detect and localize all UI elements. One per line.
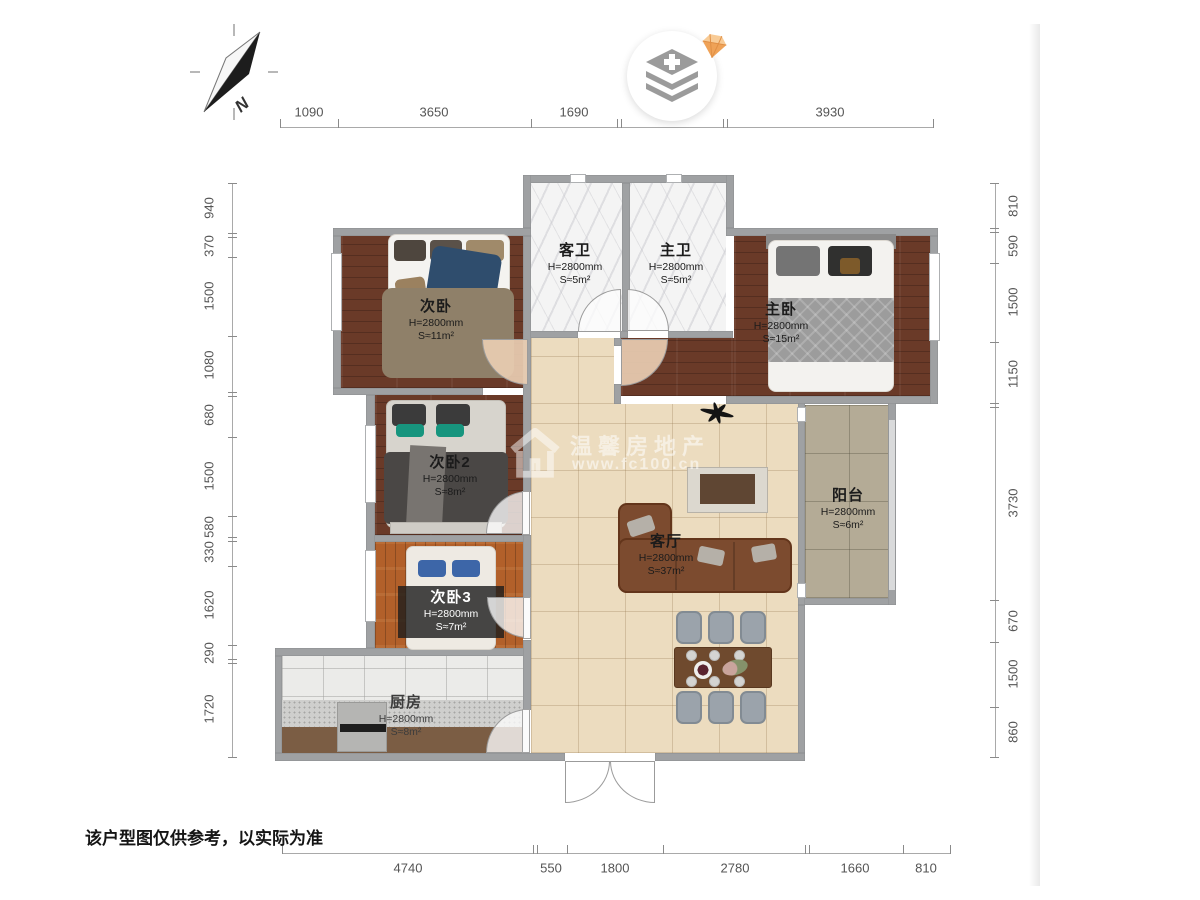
tick-mark (727, 119, 728, 128)
dim-label: 1500 (202, 282, 217, 311)
wall (275, 753, 565, 761)
tick-mark (990, 342, 999, 343)
wall (800, 598, 895, 605)
room-label-guest-bath: 客卫 H=2800mm S≈5m² (548, 241, 603, 288)
floor-hall-corridor (531, 338, 614, 404)
dim-label: 3650 (420, 105, 449, 120)
tick-mark (933, 119, 934, 128)
layers-plus-icon (644, 48, 700, 104)
tick-mark (805, 845, 806, 854)
tick-mark (228, 659, 237, 660)
room-height: H=2800mm (423, 473, 478, 487)
tick-mark (723, 119, 724, 128)
pillow (452, 560, 480, 577)
plate (686, 676, 697, 687)
tick-mark (990, 407, 999, 408)
window (929, 253, 940, 341)
room-area: S≈5m² (548, 274, 603, 288)
room-label-master-bedroom: 主卧 H=2800mm S≈15m² (754, 300, 809, 347)
tick-mark (228, 233, 237, 234)
pillow (418, 560, 446, 577)
wall (523, 175, 531, 228)
tick-mark (621, 119, 622, 128)
dim-label: 1500 (1006, 288, 1021, 317)
dim-label: 1150 (1006, 360, 1021, 388)
dim-label: 3930 (816, 105, 845, 120)
tick-mark (228, 757, 237, 758)
house-icon (506, 424, 564, 480)
tick-mark (617, 119, 618, 128)
wall (366, 535, 530, 542)
wall (275, 656, 282, 753)
tick-mark (228, 566, 237, 567)
wall (798, 605, 805, 753)
tick-mark (228, 541, 237, 542)
room-height: H=2800mm (821, 506, 876, 520)
dining-chair (708, 611, 734, 644)
tick-mark (990, 642, 999, 643)
room-height: H=2800mm (379, 713, 434, 727)
wall (655, 753, 805, 761)
dim-label: 550 (540, 861, 562, 876)
room-height: H=2800mm (548, 261, 603, 275)
pillow (840, 258, 860, 274)
plate (734, 676, 745, 687)
tick-mark (228, 257, 237, 258)
dim-label: 940 (202, 197, 217, 219)
fruit-bowl (694, 661, 712, 679)
room-name: 客厅 (639, 532, 694, 552)
dining-chair (708, 691, 734, 724)
plate (709, 676, 720, 687)
sofa-seam (733, 542, 735, 590)
entrance-door-left (565, 761, 610, 803)
window (365, 425, 376, 503)
wall (726, 396, 938, 404)
room-name: 主卫 (649, 241, 704, 261)
room-label-bedroom1: 次卧 H=2800mm S≈11m² (409, 297, 464, 344)
room-area: S≈8m² (379, 726, 434, 740)
pillow (392, 404, 426, 426)
room-height: H=2800mm (409, 317, 464, 331)
dim-label: 810 (1006, 195, 1021, 217)
room-area: S≈6m² (821, 519, 876, 533)
watermark-url: www.fc100.cn (572, 456, 701, 474)
dim-label: 1720 (202, 695, 217, 724)
wall (668, 331, 733, 338)
tick-mark (809, 845, 810, 854)
wall (614, 384, 621, 404)
pillow (776, 246, 820, 276)
tick-mark (950, 845, 951, 854)
wall (523, 175, 730, 183)
pillow (436, 404, 470, 426)
dim-label: 370 (202, 235, 217, 257)
room-height: H=2800mm (424, 608, 479, 622)
room-area: S≈15m² (754, 333, 809, 347)
dim-label: 3730 (1006, 489, 1021, 518)
tick-mark (990, 232, 999, 233)
wall (614, 338, 621, 346)
tick-mark (533, 845, 534, 854)
dim-label: 1500 (202, 462, 217, 491)
room-name: 次卧 (409, 297, 464, 317)
floor-plan-page: N 1090 3650 1690 3930 940 (0, 0, 1200, 900)
tick-mark (228, 537, 237, 538)
tick-mark (990, 757, 999, 758)
window (570, 174, 586, 183)
tick-mark (228, 645, 237, 646)
dining-chair (676, 691, 702, 724)
dim-label: 810 (915, 861, 937, 876)
tick-mark (567, 845, 568, 854)
pillow (394, 240, 426, 261)
dim-label: 290 (202, 642, 217, 664)
tv (700, 474, 755, 504)
tick-mark (531, 119, 532, 128)
wall (798, 403, 805, 605)
room-name: 厨房 (379, 693, 434, 713)
diamond-gem-icon (698, 30, 730, 62)
dim-label: 580 (202, 516, 217, 538)
door-leaf (522, 491, 530, 535)
room-name: 主卧 (754, 300, 809, 320)
dim-label: 670 (1006, 610, 1021, 632)
dim-label: 1080 (202, 351, 217, 380)
wall (333, 388, 483, 395)
dim-label: 1090 (295, 105, 324, 120)
tick-mark (228, 237, 237, 238)
dim-label: 1800 (601, 861, 630, 876)
dim-label: 590 (1006, 235, 1021, 257)
room-area: S≈37m² (639, 565, 694, 579)
tick-mark (990, 183, 999, 184)
room-name: 次卧3 (424, 588, 479, 608)
tick-mark (228, 437, 237, 438)
room-area: S≈7m² (424, 621, 479, 635)
plate (709, 650, 720, 661)
room-label-master-bath: 主卫 H=2800mm S≈5m² (649, 241, 704, 288)
tick-mark (228, 516, 237, 517)
room-name: 次卧2 (423, 453, 478, 473)
fan-icon (696, 398, 738, 428)
room-name: 阳台 (821, 486, 876, 506)
room-area: S≈11m² (409, 330, 464, 344)
room-label-balcony: 阳台 H=2800mm S≈6m² (821, 486, 876, 533)
door-leaf (523, 597, 531, 639)
tick-mark (228, 396, 237, 397)
dim-label: 1660 (841, 861, 870, 876)
balcony-glass (889, 420, 895, 590)
entrance-door-right (610, 761, 655, 803)
window (365, 550, 376, 622)
tick-mark (990, 228, 999, 229)
dim-label: 2780 (721, 861, 750, 876)
tick-mark (990, 707, 999, 708)
tick-mark (228, 183, 237, 184)
tick-mark (228, 663, 237, 664)
tick-mark (663, 845, 664, 854)
dim-label: 680 (202, 404, 217, 426)
pillow (436, 424, 464, 437)
room-height: H=2800mm (639, 552, 694, 566)
room-area: S≈8m² (423, 486, 478, 500)
tick-mark (280, 119, 281, 128)
plate (686, 650, 697, 661)
wall (620, 331, 628, 338)
pillow (396, 424, 424, 437)
dim-label: 1620 (202, 591, 217, 620)
tick-mark (228, 392, 237, 393)
room-label-bedroom2: 次卧2 H=2800mm S≈8m² (423, 453, 478, 500)
room-height: H=2800mm (754, 320, 809, 334)
window (666, 174, 682, 183)
wall (726, 175, 734, 228)
dim-label: 1500 (1006, 660, 1021, 689)
dim-label: 860 (1006, 721, 1021, 743)
dining-chair (740, 611, 766, 644)
window (797, 583, 806, 598)
north-arrow-icon: N (186, 20, 278, 124)
tick-mark (537, 845, 538, 854)
room-label-kitchen: 厨房 H=2800mm S≈8m² (379, 693, 434, 740)
room-area: S≈5m² (649, 274, 704, 288)
room-label-bedroom3: 次卧3 H=2800mm S≈7m² (424, 588, 479, 635)
room-name: 客卫 (548, 241, 603, 261)
dim-label: 4740 (394, 861, 423, 876)
dim-label: 330 (202, 541, 217, 563)
wall (523, 640, 531, 710)
room-height: H=2800mm (649, 261, 704, 275)
tick-mark (990, 600, 999, 601)
window (797, 407, 806, 422)
room-label-living-room: 客厅 H=2800mm S≈37m² (639, 532, 694, 579)
window (331, 253, 342, 331)
tick-mark (990, 403, 999, 404)
wall (523, 535, 531, 598)
dining-chair (740, 691, 766, 724)
dining-chair (676, 611, 702, 644)
panel-edge-shadow (1029, 24, 1040, 886)
door-leaf (522, 709, 530, 753)
tick-mark (903, 845, 904, 854)
tick-mark (990, 263, 999, 264)
wall (523, 331, 578, 338)
disclaimer-text: 该户型图仅供参考，以实际为准 (85, 824, 323, 849)
tick-mark (228, 336, 237, 337)
dim-label: 1690 (560, 105, 589, 120)
tick-mark (338, 119, 339, 128)
